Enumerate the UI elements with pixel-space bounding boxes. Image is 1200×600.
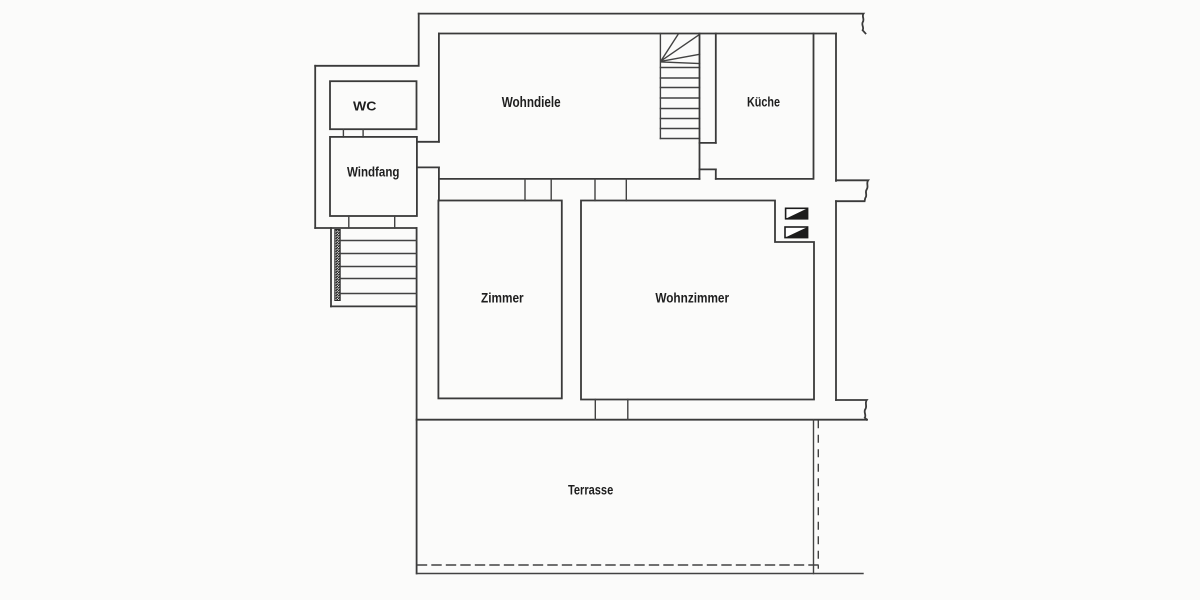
svg-text:Windfang: Windfang — [347, 163, 400, 179]
svg-text:Wohnzimmer: Wohnzimmer — [655, 290, 729, 306]
svg-text:WC: WC — [353, 98, 377, 113]
svg-text:Wohndiele: Wohndiele — [502, 95, 561, 111]
svg-text:Terrasse: Terrasse — [568, 481, 613, 497]
svg-text:Küche: Küche — [747, 94, 780, 110]
svg-text:Zimmer: Zimmer — [481, 290, 524, 306]
